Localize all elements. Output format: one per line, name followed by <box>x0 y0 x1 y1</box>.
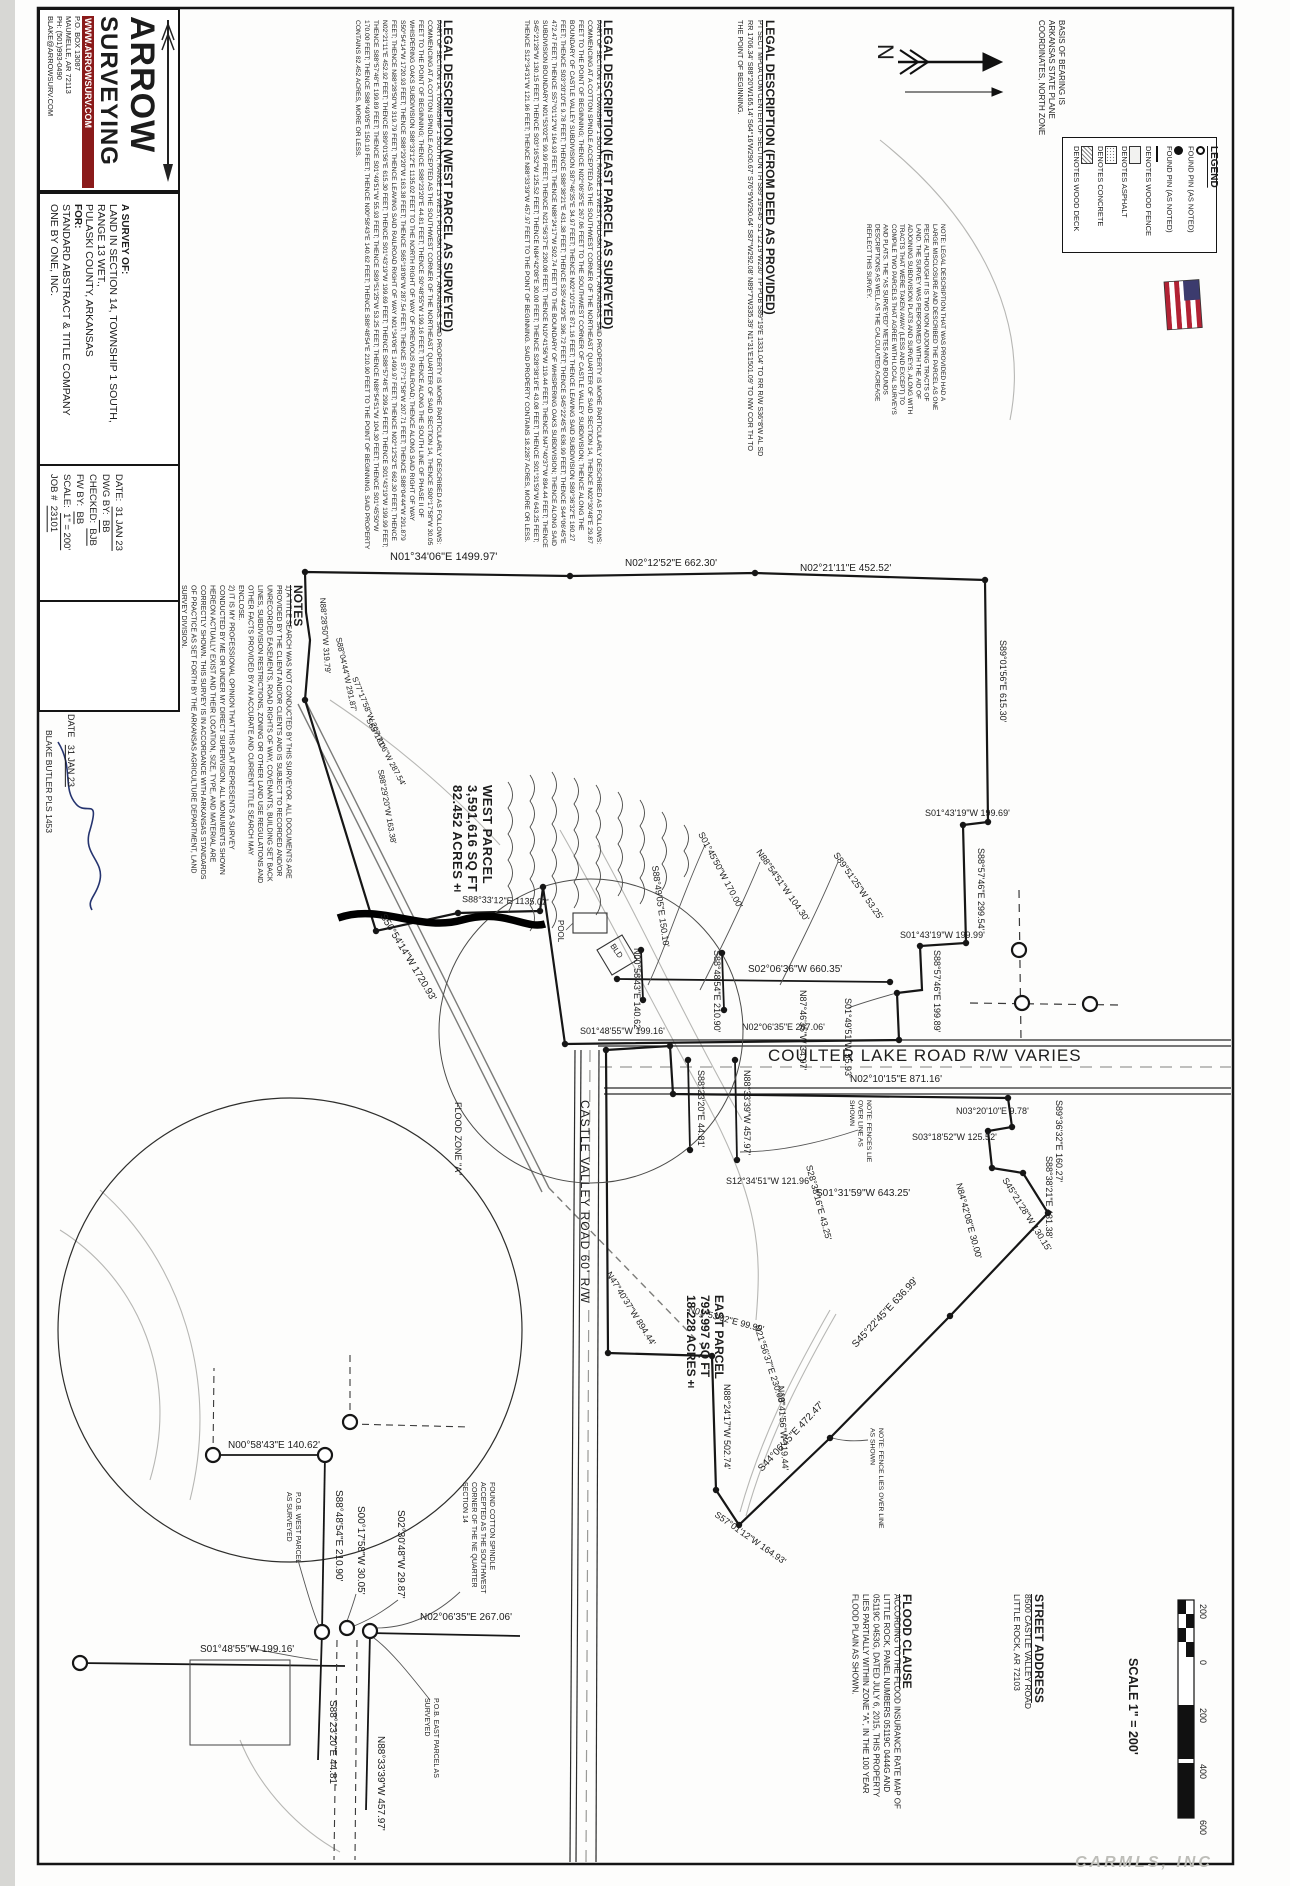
notes-title: NOTES <box>293 585 303 891</box>
legend-item: DENOTES ASPHALT <box>1120 146 1141 246</box>
legend-item: FOUND PIN (AS NOTED) <box>1187 146 1206 246</box>
bearing-label: FLOOD ZONE "A" <box>453 1102 463 1175</box>
detail-circle <box>58 1098 522 1860</box>
found-pin-icon <box>318 1448 332 1462</box>
boundary-corner-dot <box>537 908 543 914</box>
boundary-corner-dot <box>302 569 308 575</box>
boundary-corner-dot <box>887 979 893 985</box>
west-parcel-label: WEST PARCEL 3,591,616 SQ FT 82.452 ACRES… <box>450 785 495 920</box>
flood-clause-body: ACCORDING TO THE FLOOD INSURANCE RATE MA… <box>849 1594 902 1816</box>
boundary-corner-dot <box>1020 1170 1026 1176</box>
basis-of-bearing: BASIS OF BEARING IS ARKANSAS STATE PLANE… <box>1026 20 1066 140</box>
tie-lines <box>970 890 1120 1040</box>
survey-of-line1: LAND IN SECTION 14, TOWNSHIP 1 SOUTH, RA… <box>95 204 119 456</box>
boundary-corner-dot <box>827 1435 833 1441</box>
seal-box <box>38 600 180 712</box>
bearing-label: S57°01'12"W 164.93' <box>713 1509 788 1566</box>
bearing-label: S88°49'05"E 150.10' <box>650 865 671 948</box>
bearing-label: N00°58'43"E 140.62' <box>228 1440 320 1451</box>
bearing-label: S01°43'19"W 199.99' <box>900 930 985 940</box>
boundary-corner-dot <box>1009 1124 1015 1130</box>
street-address-title: STREET ADDRESS <box>1033 1594 1044 1754</box>
bearing-label: N47°40'37"W 894.44' <box>604 1270 658 1348</box>
boundary-corner-dot <box>947 1313 953 1319</box>
logo-email[interactable]: BLAKE@ARROWSURV.COM <box>46 16 55 188</box>
west-parcel-boundary[interactable] <box>305 572 988 1044</box>
east-parcel-name: EAST PARCEL <box>712 1295 726 1435</box>
boundary-corner-dot <box>734 1157 740 1163</box>
found-pin-open-icon <box>1196 146 1205 155</box>
found-pin-icon <box>1015 996 1029 1010</box>
tree-line <box>574 778 579 908</box>
mls-watermark: CARMLS, INC <box>1075 1854 1213 1872</box>
found-pin-icon <box>315 1625 329 1639</box>
boundary-corner-dot <box>960 822 966 828</box>
bearing-label: N03°20'10"E 9.78' <box>956 1106 1029 1116</box>
legend-label: FOUND PIN (AS NOTED) <box>1165 146 1174 233</box>
legal-deed-block: LEGAL DESCRIPTION (FROM DEED AS PROVIDED… <box>618 20 775 466</box>
bearing-label: S88°29'20"W 163.38' <box>376 769 398 845</box>
boundary-corner-dot <box>917 943 923 949</box>
bearing-label: S88°57'46"E 199.89' <box>932 950 942 1033</box>
fence-note-1: NOTE: FENCES LIE OVER LINE AS SHOWN <box>850 1100 872 1172</box>
tree-line <box>618 792 623 896</box>
surveyor-name: BLAKE BUTLER PLS 1453 <box>44 730 54 880</box>
bearing-label: N01°34'06"E 1499.97' <box>390 551 497 563</box>
boundary-corner-dot <box>670 1091 676 1097</box>
signature-date-value: 31 JAN 23 <box>66 745 76 787</box>
boundary-corner-dot <box>989 1165 995 1171</box>
boundary-corner-dot <box>985 819 991 825</box>
bearing-label: S01°31'59"W 643.25' <box>816 1188 910 1199</box>
found-pin-icon <box>1083 997 1097 1011</box>
bearing-label: S01°49'51"W 55.93' <box>843 998 853 1078</box>
legal-east-body: PART OF SECTION 14, TOWNSHIP 1 SOUTH, RA… <box>522 20 603 552</box>
found-pin-icon <box>343 1415 357 1429</box>
bearing-label: N84°42'08"E 30.00' <box>954 1182 984 1260</box>
client-line2: ONE BY ONE, INC. <box>48 204 60 456</box>
field-value: BB <box>100 520 111 533</box>
signature-date: DATE 31 JAN 23 <box>66 714 76 834</box>
flood-clause-title: FLOOD CLAUSE <box>902 1594 913 1816</box>
logo-box: ARROW SURVEYING WWW.ARROWSURV.COM P.O. B… <box>38 8 180 192</box>
pool-leader <box>566 923 573 930</box>
east-parcel-sqft: 793,997 SQ FT <box>698 1295 712 1435</box>
legend-label: DENOTES WOOD FENCE <box>1144 146 1153 236</box>
boundary-corner-dot <box>713 1487 719 1493</box>
bearing-label: S01°45'50"W 170.00' <box>696 830 745 910</box>
field-label: SCALE: <box>61 474 72 508</box>
asphalt-swatch-icon <box>1129 146 1141 164</box>
boundary-corner-dot <box>562 1041 568 1047</box>
legend-item: DENOTES WOOD FENCE <box>1144 146 1162 246</box>
bearing-label: S45°22'45"E 636.99' <box>850 1276 920 1350</box>
scale-tick-label: 200 <box>1198 1708 1208 1723</box>
legal-east-title: LEGAL DESCRIPTION (EAST PARCEL AS SURVEY… <box>603 20 612 552</box>
field-value: BJB <box>87 528 98 545</box>
boundary-corner-dot <box>963 940 969 946</box>
drawing-fields-box: DATE: 31 JAN 23 DWG BY: BB CHECKED: BJB … <box>38 464 180 602</box>
bearing-label: S88°23'20"E 44.81' <box>696 1070 706 1148</box>
marked-drive <box>338 914 545 925</box>
bearing-label: S44°06'45"E 472.47' <box>756 1400 826 1474</box>
bearing-label: N02°06'35"E 267.06' <box>420 1612 512 1623</box>
field-label: DWG BY: <box>100 474 111 515</box>
survey-info-box: A SURVEY OF: LAND IN SECTION 14, TOWNSHI… <box>38 192 180 466</box>
bearing-label: N88°54'51"W 104.30' <box>754 847 811 923</box>
legal-west-body: PART OF SECTION 14, TOWNSHIP 1 SOUTH, RA… <box>353 20 443 552</box>
field-value: BB <box>74 511 85 524</box>
west-parcel-sqft: 3,591,616 SQ FT <box>465 785 480 920</box>
west-parcel-acres: 82.452 ACRES± <box>450 785 465 920</box>
bearing-label: S01°48'55"W 199.16' <box>580 1026 665 1036</box>
coulter-lake-road-label: COULTER LAKE ROAD R/W VARIES <box>768 1046 1082 1066</box>
survey-plat-page: 2000200400600 REGISTERED PROFESSIONAL LA… <box>0 0 1290 1886</box>
bearing-label: N88°33'39"W 457.97' <box>742 1070 752 1156</box>
legal-west-block: LEGAL DESCRIPTION (WEST PARCEL AS SURVEY… <box>335 20 452 552</box>
bearing-label: S88°48'54"E 210.90' <box>712 950 722 1033</box>
bearing-label: S89°01'56"E 615.30' <box>998 640 1008 723</box>
wood-fence-line-icon <box>1156 146 1158 162</box>
bearing-label: S01°48'55"W 199.16' <box>200 1644 294 1655</box>
boundary-corner-dot <box>302 697 308 703</box>
wood-deck-swatch-icon <box>1081 146 1093 164</box>
scale-tick-label: 200 <box>1198 1604 1208 1619</box>
legal-deed-title: LEGAL DESCRIPTION (FROM DEED AS PROVIDED… <box>765 20 775 466</box>
street-address-line2: LITTLE ROCK, AR 72103 <box>1011 1594 1022 1754</box>
bearing-label: N02°21'11"E 452.52' <box>800 563 891 574</box>
legend-label: DENOTES CONCRETE <box>1096 146 1105 226</box>
boundary-corner-dot <box>982 577 988 583</box>
east-parcel-label: EAST PARCEL 793,997 SQ FT 18.228 ACRES± <box>684 1295 726 1435</box>
cotton-spindle-callout: FOUND COTTON SPINDLE ACCEPTED AS THE SOU… <box>450 1482 496 1600</box>
us-flag-icon <box>1164 280 1202 330</box>
boundary-corner-dot <box>614 976 620 982</box>
boundary-corner-dot <box>603 1047 609 1053</box>
logo-phone: PH: (501)993-0490 <box>55 16 64 188</box>
street-address-line1: 8500 CASTLE VALLEY ROAD <box>1022 1594 1033 1754</box>
scale-tick-label: 400 <box>1198 1764 1208 1779</box>
legend-box: LEGEND FOUND PIN (AS NOTED) FOUND PIN (A… <box>1062 137 1217 253</box>
legend-item: FOUND PIN (AS NOTED) <box>1165 146 1184 246</box>
legend-label: FOUND PIN (AS NOTED) <box>1187 146 1196 233</box>
tree-line <box>684 825 689 877</box>
legal-west-title: LEGAL DESCRIPTION (WEST PARCEL AS SURVEY… <box>443 20 452 552</box>
provided-note: NOTE: LEGAL DESCRIPTION THAT WAS PROVIDE… <box>880 224 946 416</box>
boundary-corner-dot <box>605 1350 611 1356</box>
flood-clause-block: FLOOD CLAUSE ACCORDING TO THE FLOOD INSU… <box>818 1594 912 1816</box>
field-label: FW BY: <box>74 474 85 506</box>
boundary-corner-dot <box>540 884 546 890</box>
bearing-label: N02°10'15"E 871.16' <box>850 1074 942 1085</box>
tree-line <box>552 772 557 928</box>
field-label: CHECKED: <box>87 474 98 523</box>
boundary-corner-dot <box>732 1057 738 1063</box>
bearing-label: S89°51'25"W 53.25' <box>831 850 885 921</box>
boundary-corner-dot <box>687 1147 693 1153</box>
bearing-label: S88°38'21"E 431.38' <box>1044 1156 1054 1239</box>
logo-arrow-icon <box>160 14 176 186</box>
bearing-label: N88°33'39"W 457.97' <box>375 1736 386 1831</box>
surveyor-signature <box>58 742 100 910</box>
note-1: 1) A TITLE SEARCH WAS NOT CONDUCTED BY T… <box>236 585 293 891</box>
bearing-label: S02°30'48"W 29.87' <box>395 1510 406 1599</box>
bearing-label: N02°06'35"E 267.06' <box>742 1022 825 1032</box>
found-pin-icon <box>363 1624 377 1638</box>
bearing-label: POOL <box>556 920 565 943</box>
logo-addr2: MAUMELLE, AR 72113 <box>64 16 73 188</box>
pob-east-callout: P.O.B. EAST PARCEL AS SURVEYED <box>418 1698 440 1780</box>
logo-name-1: ARROW <box>122 16 161 188</box>
found-pin-icon <box>206 1448 220 1462</box>
notes-block: NOTES 1) A TITLE SEARCH WAS NOT CONDUCTE… <box>188 585 302 891</box>
bearing-label: S88°57'46"E 299.54' <box>976 848 986 931</box>
found-pin-icon <box>73 1656 87 1670</box>
bearing-label: S00°17'58"W 30.05' <box>355 1506 366 1595</box>
field-label: DATE: <box>113 474 124 501</box>
scale-label: SCALE 1" = 200' <box>1126 1658 1140 1798</box>
concrete-swatch-icon <box>1105 146 1117 164</box>
signature-date-label: DATE <box>66 714 76 737</box>
bearing-label: S02°06'36"W 660.35' <box>748 964 842 975</box>
fence-note-2: NOTE: FENCE LIES OVER LINE AS SHOWN <box>862 1428 884 1533</box>
bearing-label: N00°58'43"E 140.62' <box>632 948 642 1031</box>
boundary-corner-dot <box>685 1057 691 1063</box>
west-parcel-name: WEST PARCEL <box>480 785 495 920</box>
field-label: JOB # <box>48 474 59 500</box>
logo-website[interactable]: WWW.ARROWSURV.COM <box>82 16 94 188</box>
castle-valley-road-label: CASTLE VALLEY ROAD 60' R/W <box>578 1100 592 1330</box>
survey-of-line2: PULASKI COUNTY, ARKANSAS <box>83 204 95 456</box>
north-arrow-icon <box>898 50 1002 96</box>
found-pin-filled-icon <box>1174 146 1183 155</box>
tree-line <box>596 785 601 915</box>
boundary-corner-dot <box>896 1037 902 1043</box>
east-parcel-boundary[interactable] <box>606 1046 1048 1525</box>
bearing-label: S88°48'54"E 210.90' <box>333 1490 344 1582</box>
scale-tick-label: 600 <box>1198 1820 1208 1835</box>
scale-tick-label: 0 <box>1198 1660 1208 1665</box>
field-value: 23101 <box>48 506 59 532</box>
for-label: FOR: <box>72 204 83 456</box>
scale-bar: 2000200400600 <box>1178 1600 1208 1835</box>
logo-name-2: SURVEYING <box>94 16 122 188</box>
tree-line <box>508 782 513 912</box>
pool <box>573 913 607 933</box>
legend-label: DENOTES ASPHALT <box>1120 146 1129 218</box>
bearing-label: N02°12'52"E 662.30' <box>625 558 717 569</box>
boundary-corner-dot <box>752 570 758 576</box>
pob-west-callout: P.O.B. WEST PARCEL AS SURVEYED <box>280 1492 302 1570</box>
field-value: 31 JAN 23 <box>113 507 124 551</box>
boundary-corner-dot <box>373 928 379 934</box>
legend-title: LEGEND <box>1208 146 1219 246</box>
bearing-label: S88°23'20"E 44.81' <box>327 1700 338 1786</box>
logo-addr1: P.O. BOX 13087 <box>73 16 82 188</box>
found-pin-icon <box>340 1621 354 1635</box>
note-2: 2) IT IS MY PROFESSIONAL OPINION THAT TH… <box>179 585 236 891</box>
found-pin-icon <box>1012 943 1026 957</box>
east-parcel-acres: 18.228 ACRES± <box>684 1295 698 1435</box>
bearing-label: N <box>873 44 898 60</box>
bearing-label: S89°36'32"E 160.27' <box>1054 1100 1064 1183</box>
street-address-block: STREET ADDRESS 8500 CASTLE VALLEY ROAD L… <box>988 1594 1044 1754</box>
bearing-label: N21°56'37"E 230.08' <box>752 1324 787 1406</box>
boundary-corner-dot <box>567 573 573 579</box>
legend-item: DENOTES CONCRETE <box>1096 146 1117 246</box>
bearing-label: S01°43'19"W 199.69' <box>925 808 1010 818</box>
client-line1: STANDARD ABSTRACT & TITLE COMPANY <box>60 204 72 456</box>
boundary-corner-dot <box>1005 1095 1011 1101</box>
boundary-corner-dot <box>894 990 900 996</box>
boundary-corner-dot <box>667 1043 673 1049</box>
bearing-label: S12°34'51"W 121.96' <box>726 1176 811 1186</box>
bearing-label: S88°04'44"W 291.87' <box>334 637 359 713</box>
survey-of-label: A SURVEY OF: <box>119 204 130 456</box>
field-value: 1" = 200' <box>61 513 72 550</box>
bearing-label: N88°28'50"W 319.79' <box>318 598 332 675</box>
bearing-label: S03°18'52"W 125.52' <box>912 1132 997 1142</box>
legal-east-block: LEGAL DESCRIPTION (EAST PARCEL AS SURVEY… <box>455 20 612 552</box>
legend-label: DENOTES WOOD DECK <box>1072 146 1081 231</box>
legend-item: DENOTES WOOD DECK <box>1072 146 1093 246</box>
legal-deed-body: PT SECT MPDA COM CENTER OF SECTION TH S8… <box>735 20 765 466</box>
tree-line <box>530 775 535 931</box>
